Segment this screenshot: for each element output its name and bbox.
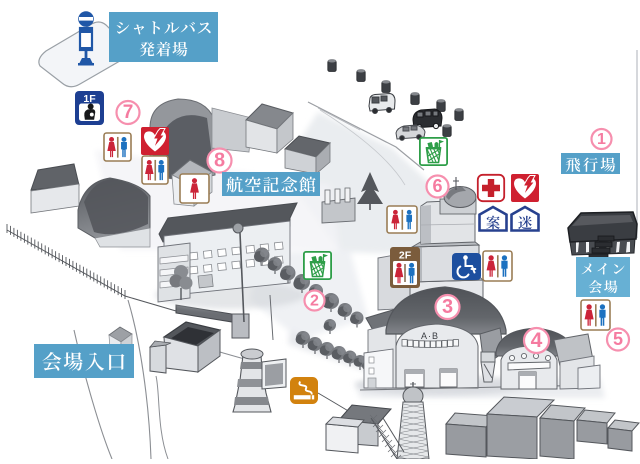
svg-text:1: 1	[597, 131, 606, 148]
svg-text:8: 8	[214, 150, 225, 172]
svg-text:2: 2	[310, 293, 319, 310]
svg-text:2F: 2F	[399, 250, 412, 262]
svg-text:4: 4	[531, 329, 543, 352]
svg-text:7: 7	[123, 102, 134, 123]
svg-text:1F: 1F	[83, 93, 96, 105]
svg-text:5: 5	[613, 329, 623, 349]
svg-text:6: 6	[432, 176, 442, 196]
svg-text:A·B: A·B	[421, 331, 439, 341]
svg-text:3: 3	[442, 296, 453, 318]
